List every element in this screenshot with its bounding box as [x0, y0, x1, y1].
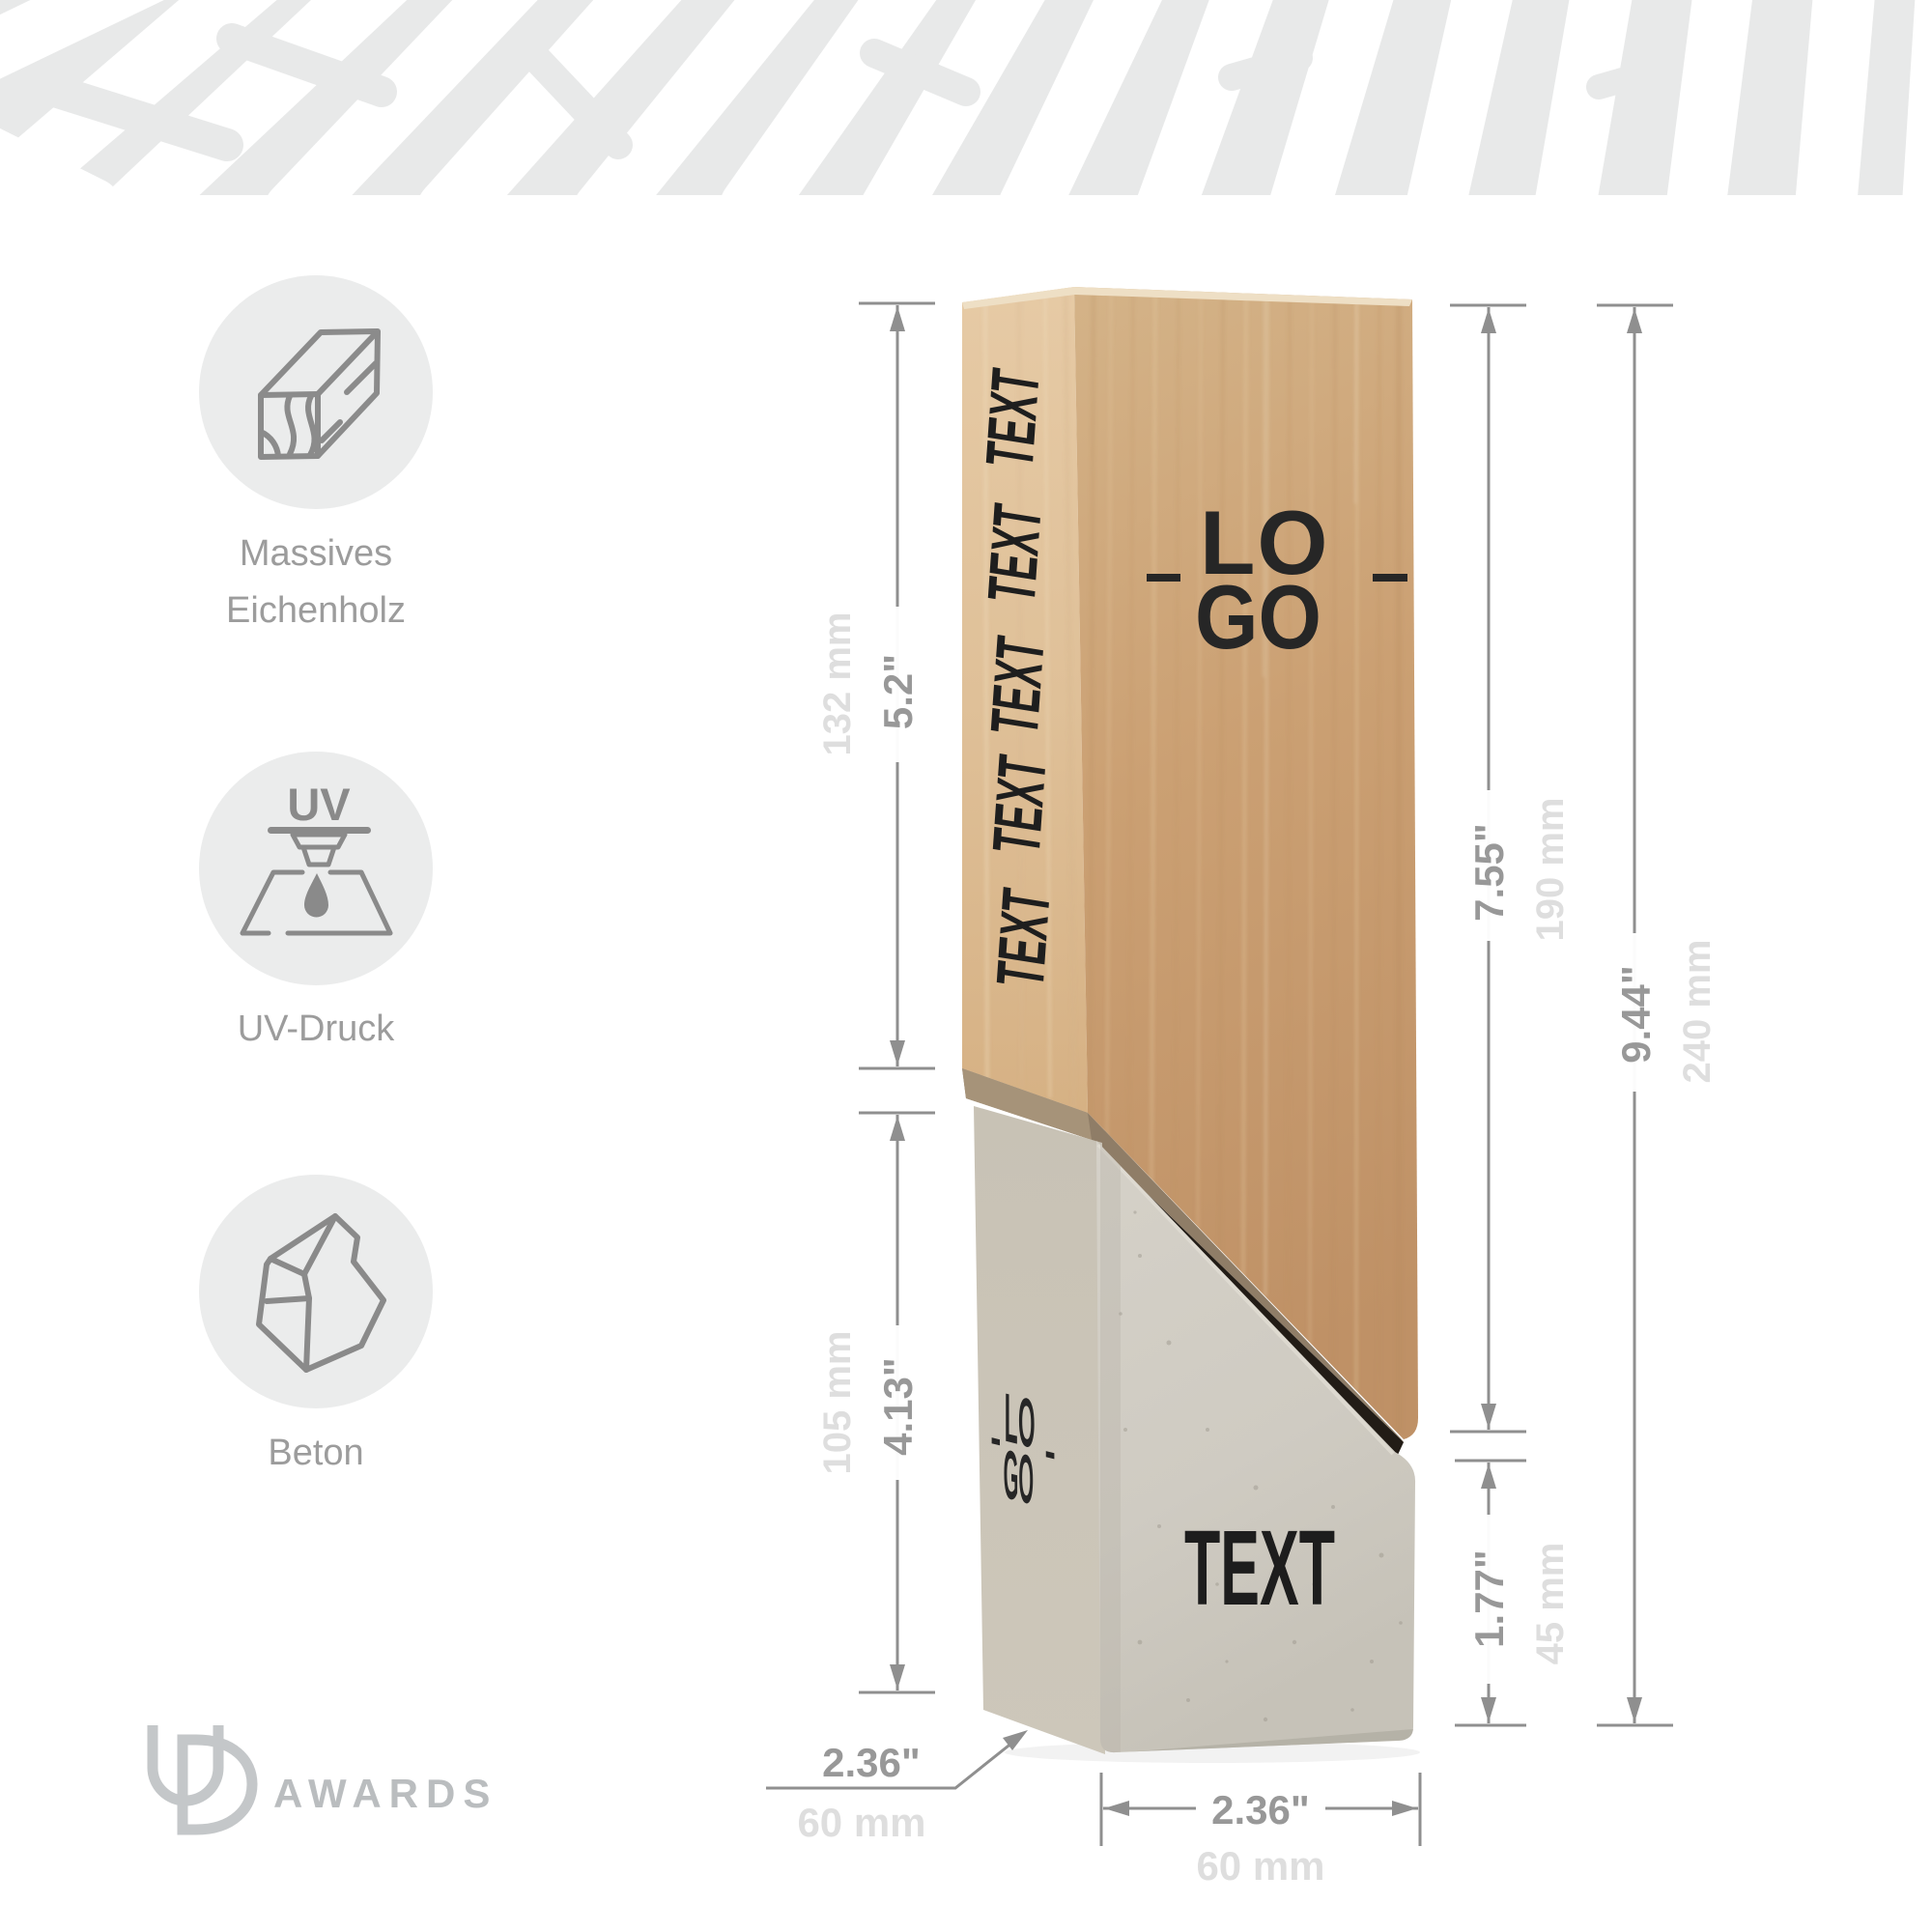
svg-text:UV: UV: [287, 779, 351, 830]
svg-text:1.77": 1.77": [1466, 1549, 1512, 1648]
svg-text:Beton: Beton: [268, 1433, 363, 1473]
svg-text:Eichenholz: Eichenholz: [226, 590, 406, 631]
svg-text:7.55": 7.55": [1466, 823, 1512, 922]
svg-text:TEXT: TEXT: [972, 364, 1053, 472]
svg-text:240 mm: 240 mm: [1676, 940, 1719, 1084]
svg-text:105 mm: 105 mm: [816, 1331, 859, 1475]
svg-text:4.13": 4.13": [875, 1357, 921, 1456]
svg-text:2.36": 2.36": [1211, 1787, 1310, 1833]
svg-text:AWARDS: AWARDS: [273, 1771, 497, 1816]
svg-text:2.36": 2.36": [822, 1740, 921, 1785]
svg-text:Massives: Massives: [240, 533, 392, 574]
svg-text:TEXT: TEXT: [982, 884, 1064, 992]
svg-text:TEXT: TEXT: [977, 632, 1058, 740]
svg-text:9.44": 9.44": [1613, 965, 1659, 1064]
svg-text:TEXT: TEXT: [979, 751, 1060, 859]
svg-text:TEXT: TEXT: [974, 499, 1055, 608]
svg-text:60 mm: 60 mm: [1196, 1843, 1324, 1889]
svg-text:TEXT: TEXT: [1184, 1509, 1335, 1628]
svg-text:5.2": 5.2": [875, 654, 921, 729]
svg-text:UV-Druck: UV-Druck: [238, 1009, 396, 1049]
svg-text:190 mm: 190 mm: [1529, 798, 1572, 942]
svg-text:60 mm: 60 mm: [797, 1800, 925, 1845]
svg-text:45 mm: 45 mm: [1529, 1543, 1572, 1665]
svg-text:132 mm: 132 mm: [816, 612, 859, 756]
